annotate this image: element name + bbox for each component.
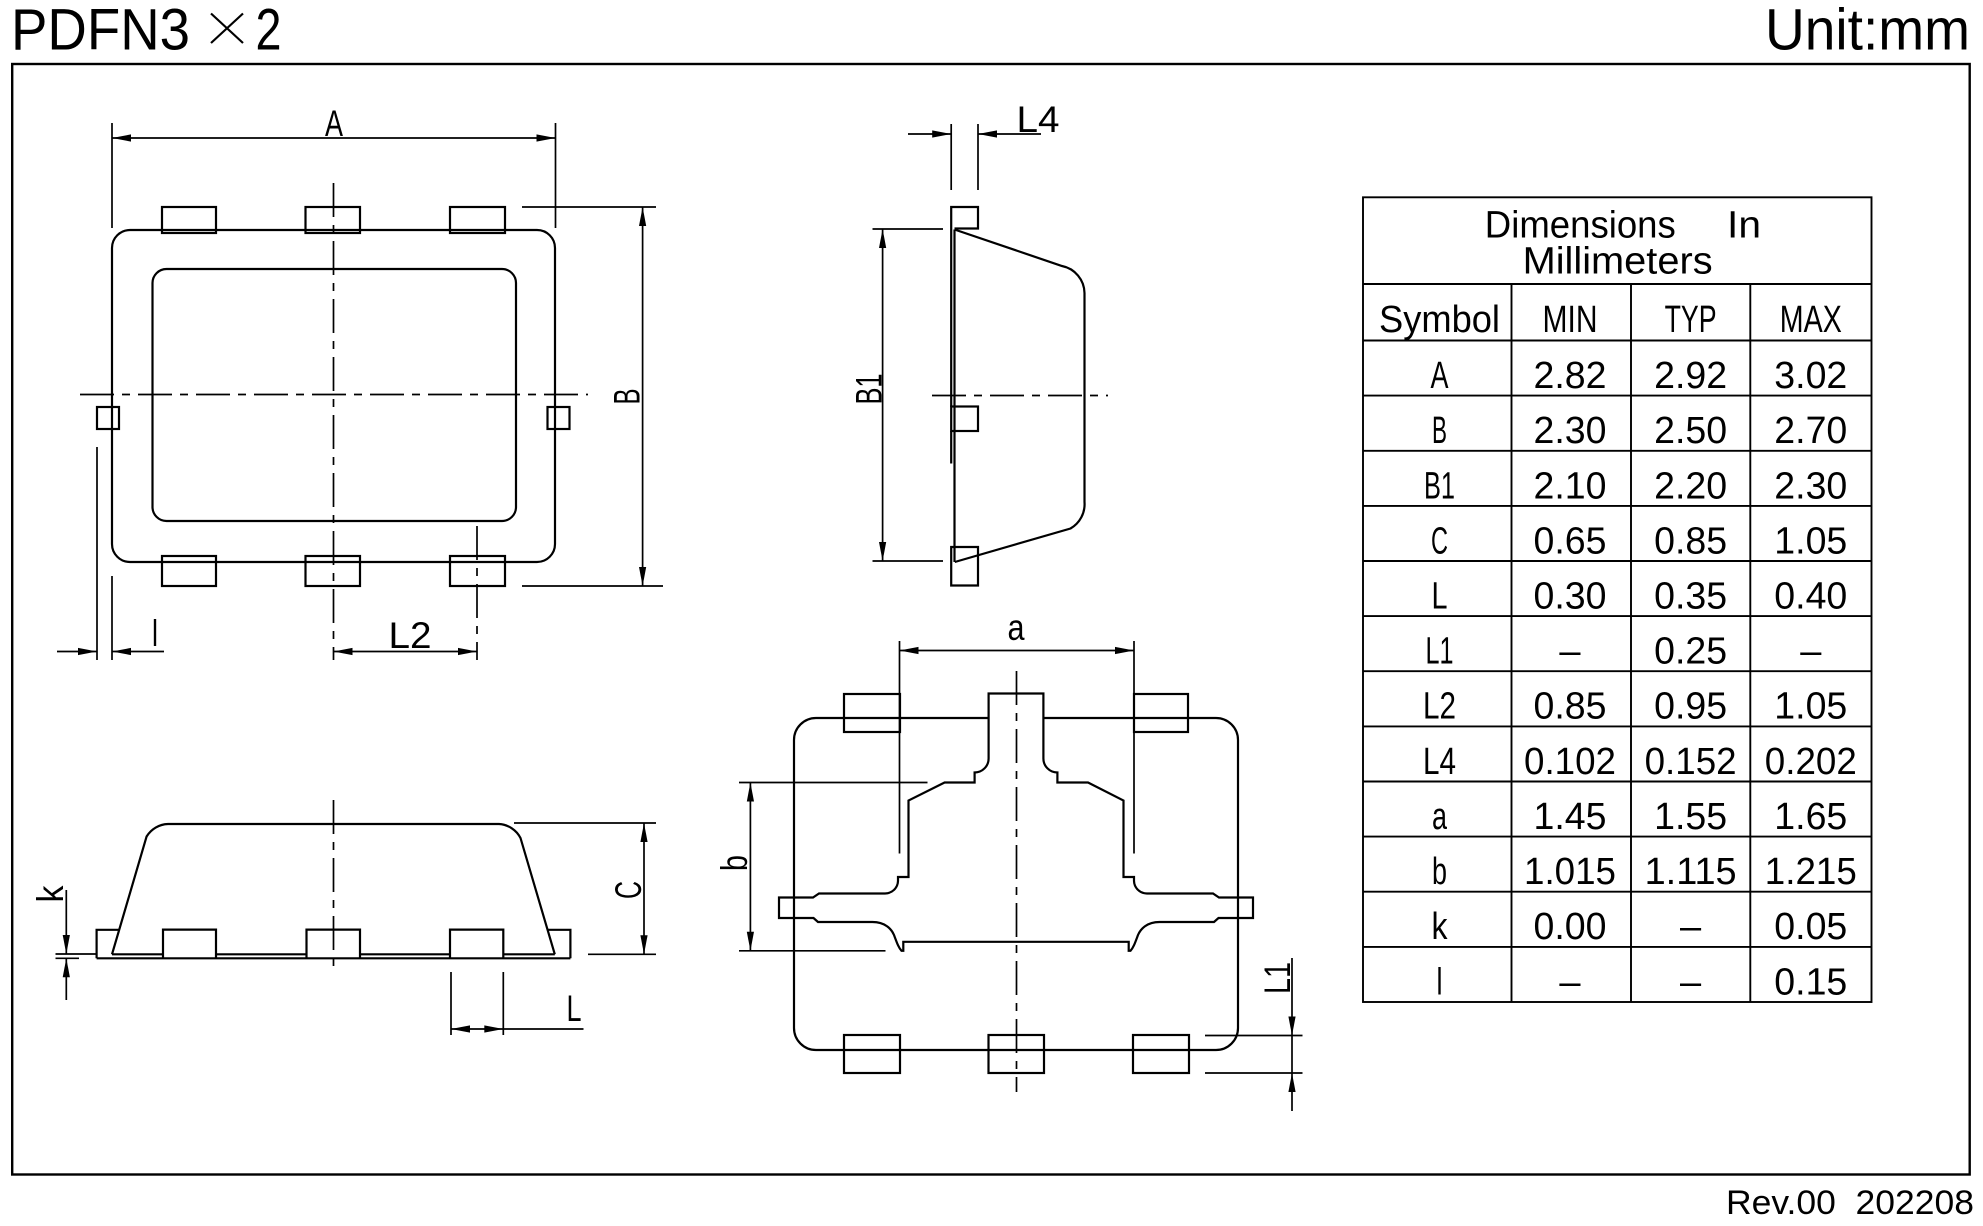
svg-text:a: a bbox=[1432, 796, 1448, 838]
svg-text:b: b bbox=[714, 855, 755, 871]
svg-text:1.65: 1.65 bbox=[1774, 796, 1847, 838]
svg-text:3.02: 3.02 bbox=[1774, 355, 1847, 397]
svg-text:TYP: TYP bbox=[1665, 299, 1717, 341]
svg-text:2.10: 2.10 bbox=[1534, 465, 1607, 507]
svg-text:2: 2 bbox=[256, 0, 282, 63]
svg-text:–: – bbox=[1800, 631, 1822, 673]
svg-text:1.55: 1.55 bbox=[1654, 796, 1727, 838]
svg-text:1.115: 1.115 bbox=[1645, 851, 1737, 893]
svg-text:Millimeters: Millimeters bbox=[1523, 241, 1713, 283]
svg-text:–: – bbox=[1680, 961, 1702, 1003]
svg-text:0.85: 0.85 bbox=[1654, 520, 1727, 562]
svg-text:0.95: 0.95 bbox=[1654, 686, 1727, 728]
svg-text:A: A bbox=[325, 103, 343, 144]
svg-text:Symbol: Symbol bbox=[1379, 299, 1500, 341]
svg-text:L2: L2 bbox=[1423, 686, 1456, 728]
svg-text:0.25: 0.25 bbox=[1654, 631, 1727, 673]
svg-text:1.05: 1.05 bbox=[1774, 686, 1847, 728]
svg-text:–: – bbox=[1559, 631, 1581, 673]
svg-text:PDFN3: PDFN3 bbox=[11, 0, 190, 63]
svg-text:0.65: 0.65 bbox=[1534, 520, 1607, 562]
svg-text:0.102: 0.102 bbox=[1524, 741, 1616, 783]
svg-text:l: l bbox=[152, 613, 158, 654]
svg-text:1.05: 1.05 bbox=[1774, 520, 1847, 562]
svg-text:2.70: 2.70 bbox=[1774, 410, 1847, 452]
svg-text:2.50: 2.50 bbox=[1654, 410, 1727, 452]
svg-text:0.15: 0.15 bbox=[1774, 961, 1847, 1003]
svg-text:–: – bbox=[1559, 961, 1581, 1003]
svg-text:L1: L1 bbox=[1426, 631, 1454, 673]
svg-text:B1: B1 bbox=[1424, 465, 1455, 507]
svg-text:0.05: 0.05 bbox=[1774, 906, 1847, 948]
svg-text:k: k bbox=[1432, 906, 1449, 948]
svg-text:1.015: 1.015 bbox=[1524, 851, 1616, 893]
svg-text:MIN: MIN bbox=[1543, 299, 1598, 341]
svg-text:1.215: 1.215 bbox=[1765, 851, 1857, 893]
svg-text:MAX: MAX bbox=[1780, 299, 1842, 341]
svg-text:2.92: 2.92 bbox=[1654, 355, 1727, 397]
svg-text:L4: L4 bbox=[1017, 99, 1060, 140]
svg-text:A: A bbox=[1431, 355, 1449, 397]
svg-text:L4: L4 bbox=[1423, 741, 1456, 783]
svg-text:L: L bbox=[1432, 576, 1448, 618]
svg-text:C: C bbox=[608, 881, 649, 899]
svg-text:C: C bbox=[1431, 520, 1448, 562]
svg-text:0.30: 0.30 bbox=[1534, 576, 1607, 618]
svg-text:1.45: 1.45 bbox=[1534, 796, 1607, 838]
svg-text:2.30: 2.30 bbox=[1534, 410, 1607, 452]
svg-text:B: B bbox=[1432, 410, 1447, 452]
svg-text:l: l bbox=[1437, 961, 1443, 1003]
svg-text:0.40: 0.40 bbox=[1774, 576, 1847, 618]
svg-text:a: a bbox=[1008, 607, 1025, 648]
svg-text:B: B bbox=[607, 389, 648, 405]
svg-text:L1: L1 bbox=[1257, 962, 1298, 994]
svg-text:2.30: 2.30 bbox=[1774, 465, 1847, 507]
svg-text:0.85: 0.85 bbox=[1534, 686, 1607, 728]
svg-text:2.20: 2.20 bbox=[1654, 465, 1727, 507]
svg-text:B1: B1 bbox=[849, 374, 890, 405]
svg-text:L2: L2 bbox=[389, 615, 432, 656]
svg-text:2.82: 2.82 bbox=[1534, 355, 1607, 397]
svg-text:k: k bbox=[30, 885, 71, 902]
svg-text:0.35: 0.35 bbox=[1654, 576, 1727, 618]
svg-text:–: – bbox=[1680, 906, 1702, 948]
svg-text:Rev.00 202208: Rev.00 202208 bbox=[1726, 1184, 1974, 1222]
svg-text:L: L bbox=[567, 988, 582, 1029]
svg-text:0.202: 0.202 bbox=[1765, 741, 1857, 783]
svg-text:b: b bbox=[1432, 851, 1447, 893]
svg-text:0.152: 0.152 bbox=[1645, 741, 1737, 783]
svg-text:In: In bbox=[1727, 205, 1761, 247]
svg-text:0.00: 0.00 bbox=[1534, 906, 1607, 948]
svg-text:Unit:mm: Unit:mm bbox=[1765, 0, 1970, 63]
